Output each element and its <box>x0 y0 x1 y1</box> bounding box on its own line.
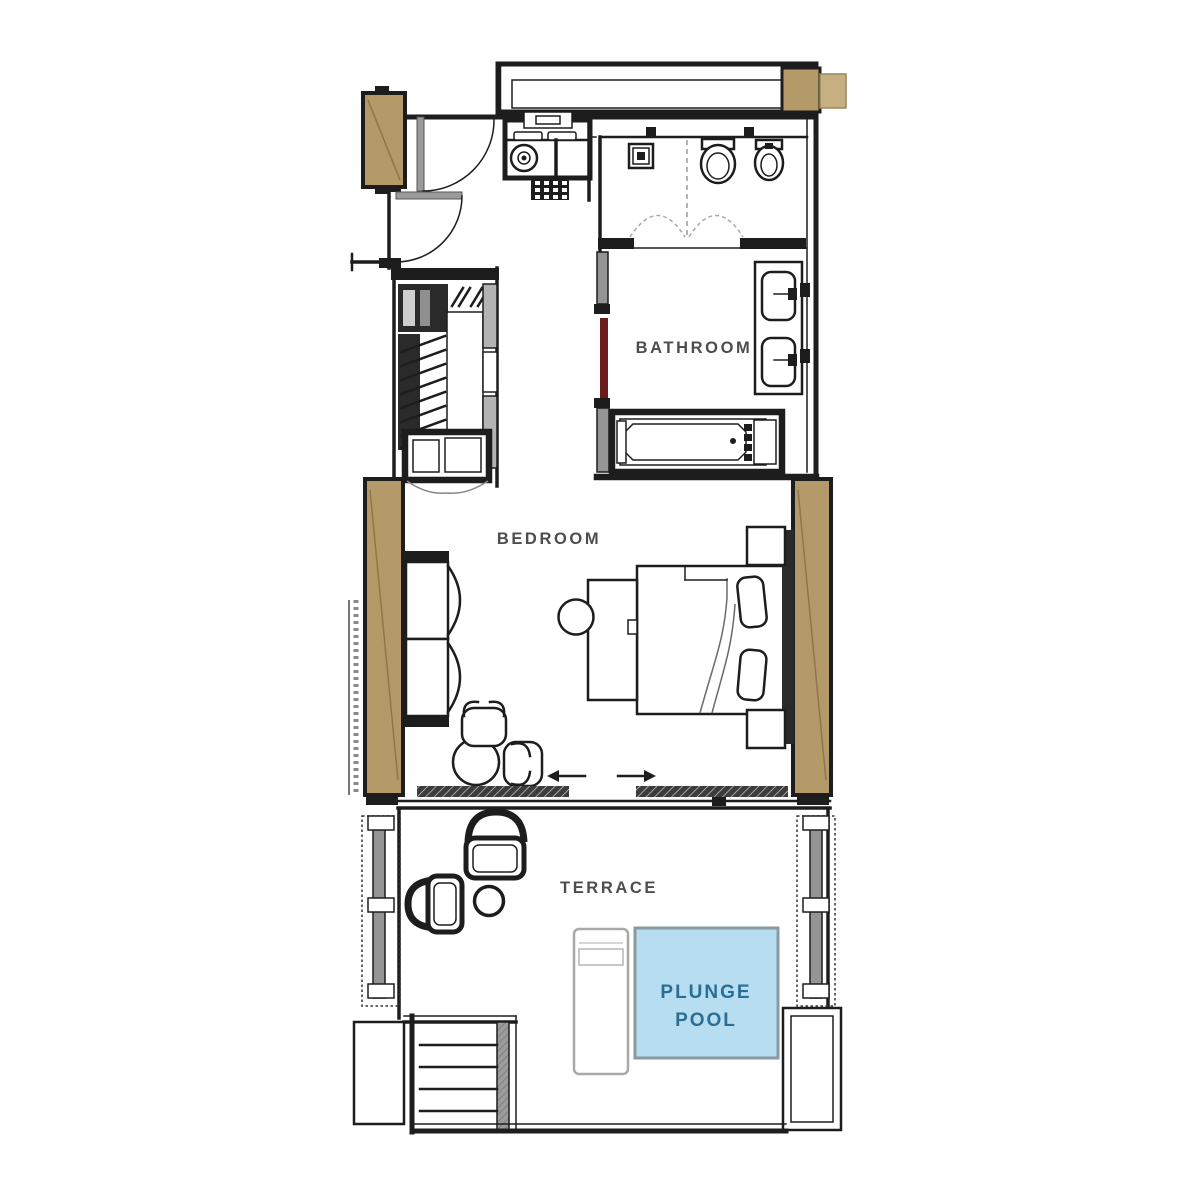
bed-icon <box>637 527 794 748</box>
lounger-pillow <box>579 949 623 965</box>
closet-open-bay <box>447 312 483 448</box>
nightstand <box>747 710 785 748</box>
outdoor-chair <box>408 876 462 932</box>
cabinet-body <box>405 432 489 480</box>
stairs <box>404 1016 516 1132</box>
armchair-seat <box>462 708 506 746</box>
inner-door-swing <box>396 192 462 262</box>
wardrobe <box>391 268 499 493</box>
landing-pad-left <box>354 1022 404 1124</box>
minibar-cabinet <box>405 432 489 493</box>
wood-column-top-right-ext <box>820 74 846 108</box>
plunge-pool: PLUNGE POOL <box>635 928 778 1058</box>
armchair <box>504 742 542 786</box>
tray <box>514 132 542 140</box>
wall-block <box>594 304 610 314</box>
chair-seat <box>428 876 462 932</box>
desk <box>588 580 637 700</box>
railing-left <box>362 796 400 1006</box>
column-cap <box>375 86 389 95</box>
lounge-seating <box>453 702 542 786</box>
sofa-cushion-arc <box>448 643 460 712</box>
desk-top <box>588 580 637 700</box>
railing-connector <box>366 796 398 805</box>
sink-icon <box>629 144 653 168</box>
stool <box>559 600 594 635</box>
wc-room <box>589 120 806 250</box>
tub-end-ledge <box>754 420 776 464</box>
sofa-cap <box>403 551 449 562</box>
door-arc <box>396 196 462 262</box>
band-tick <box>646 127 656 137</box>
wall-block <box>379 258 401 268</box>
door-leaf <box>417 117 424 191</box>
tub-drain <box>730 438 736 444</box>
entry-door-swing <box>417 117 494 191</box>
threshold-hatch <box>417 786 569 797</box>
toilet-bowl <box>701 145 735 183</box>
faucet <box>788 288 797 300</box>
bidet-icon <box>755 140 783 180</box>
sofa-seat <box>406 562 448 639</box>
terrace-label: TERRACE <box>560 879 658 897</box>
nightstand <box>747 527 785 565</box>
wall-block <box>800 283 810 297</box>
utility-room <box>505 112 590 200</box>
faucet <box>788 354 797 366</box>
toilet-icon <box>701 139 735 183</box>
sofa-cap <box>403 716 449 727</box>
wall-hatch-segment <box>483 284 497 348</box>
slide-arrow-right <box>618 770 656 782</box>
railing-post <box>803 816 829 830</box>
sink-faucet <box>637 152 645 160</box>
column-cap <box>375 185 389 194</box>
door-arc <box>423 120 494 191</box>
railing-connector <box>797 796 829 805</box>
wall-block <box>594 398 610 408</box>
bedroom: BEDROOM <box>349 479 831 808</box>
railing-post <box>803 984 829 998</box>
terrace: TERRACE <box>354 796 841 1132</box>
wall-gap <box>483 352 497 392</box>
closet-top-wall <box>391 268 499 280</box>
wood-column-top-right <box>782 68 820 112</box>
tub-end-ledge <box>617 421 626 463</box>
cabinet-slot <box>403 290 415 326</box>
wall-hatch-segment <box>597 252 608 304</box>
sofa <box>403 551 460 727</box>
landing-pad-right <box>783 1008 841 1130</box>
wall-hatch-segment <box>597 408 609 472</box>
slide-arrow-left <box>547 770 585 782</box>
niche-inner <box>536 116 560 124</box>
armchair <box>462 702 506 746</box>
bifold-door-arc <box>630 216 685 238</box>
armchair-seat <box>504 742 542 786</box>
bedroom-label: BEDROOM <box>497 530 601 548</box>
railing-post <box>803 898 829 912</box>
floor-plan-page: BATHROOM <box>0 0 1200 1200</box>
band-tick <box>744 127 754 137</box>
pillow <box>737 649 767 701</box>
door-leaf <box>396 192 462 199</box>
cabinet-slot <box>420 290 430 326</box>
outdoor-chair <box>466 812 524 878</box>
railing-post <box>368 898 394 912</box>
sofa-seat <box>406 639 448 716</box>
stair-stringer <box>497 1022 509 1130</box>
floor-grate-icon <box>531 178 569 200</box>
wall-block <box>800 349 810 363</box>
threshold-hatch <box>636 786 788 797</box>
sun-lounger <box>574 929 628 1074</box>
railing-post <box>368 816 394 830</box>
plunge-pool-label-line1: PLUNGE <box>660 982 751 1003</box>
pillow <box>736 576 767 628</box>
bathroom: BATHROOM <box>594 252 810 472</box>
plunge-pool-label-line2: POOL <box>675 1010 737 1031</box>
entry <box>363 86 494 262</box>
red-door-accent <box>600 318 608 398</box>
tray <box>548 132 576 140</box>
bathroom-label: BATHROOM <box>636 339 753 357</box>
track-stop <box>712 797 726 806</box>
round-fixture-icon <box>511 145 537 171</box>
sofa-cushion-arc <box>448 566 460 635</box>
desk-notch <box>628 620 637 634</box>
bidet-valve <box>765 143 773 149</box>
fixture-dot <box>522 156 527 161</box>
railing-post <box>368 984 394 998</box>
vanity <box>755 262 810 394</box>
floor-plan: BATHROOM <box>0 0 1200 1200</box>
bidet-bowl <box>755 146 783 180</box>
bifold-door-arc <box>689 216 743 238</box>
bathtub-icon <box>612 412 782 472</box>
side-table <box>475 887 504 916</box>
top-band-inner <box>512 80 790 108</box>
